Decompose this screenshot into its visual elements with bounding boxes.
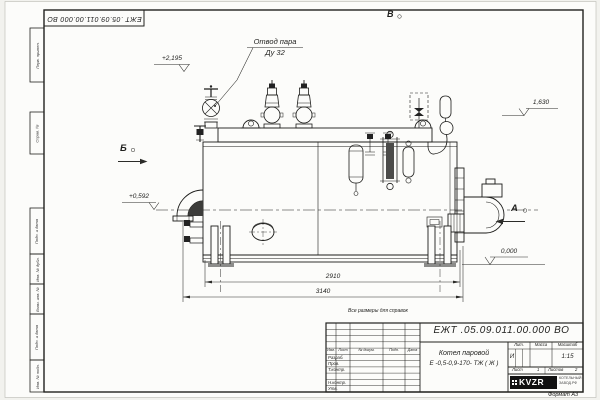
view-label-top: В xyxy=(387,10,394,19)
view-label-left: Б xyxy=(120,144,127,154)
titleblock-sheet-value: 1 xyxy=(537,368,539,372)
titleblock-col-izm: Изм. xyxy=(326,349,336,353)
titleblock-lit-header: Лит. xyxy=(508,343,530,347)
titleblock-mass-header: Масса xyxy=(530,343,552,347)
view-label-right: А xyxy=(511,204,518,214)
dimension-overall-length: 3140 xyxy=(300,289,346,296)
margin-col-perv-primen: Перв. примен. xyxy=(30,28,44,82)
titleblock-row-utv: Утв. xyxy=(328,387,338,391)
titleblock-row-nkontr: Н.контр. xyxy=(328,381,346,385)
titleblock-col-doc: № докум. xyxy=(350,349,383,353)
format-note: Формат А3 xyxy=(548,393,578,399)
titleblock-col-list: Лист xyxy=(336,349,350,353)
margin-col-inv-dubl: Инв. № дубл. xyxy=(30,254,44,284)
titleblock-sheets-label: Листов xyxy=(548,368,563,372)
stamp-doc-number: ЕЖТ .05.09.011.00.000 ВО xyxy=(44,10,144,26)
titleblock-col-date: Дата xyxy=(405,349,420,353)
elevation-value-axis: +0,592 xyxy=(121,194,157,201)
titleblock-col-sign: Подп. xyxy=(383,349,405,353)
titleblock-sheet-label: Лист xyxy=(512,368,523,372)
steam-outlet-label-line2: Ду 32 xyxy=(246,49,304,57)
dimension-shell-length: 2910 xyxy=(310,274,356,281)
titleblock-scale-header: Масштаб xyxy=(552,343,583,347)
titleblock-row-razrab: Разраб. xyxy=(328,356,344,360)
margin-col-sprav: Справ. № xyxy=(30,112,44,154)
titleblock-doc-number: ЕЖТ .05.09.011.00.000 ВО xyxy=(421,326,582,336)
titleblock-row-prov: Пров. xyxy=(328,362,339,366)
titleblock-row-tkontr: Т.контр. xyxy=(328,368,345,372)
titleblock-scale-value: 1:15 xyxy=(552,354,583,360)
margin-col-podp-data-2: Подп. и дата xyxy=(30,314,44,360)
titleblock-product-designation: Е -0,5-0,9-170- ТЖ ( Ж ) xyxy=(420,361,508,367)
kvzr-caption-line1: КОТЕЛЬНЫЙ xyxy=(559,377,582,381)
drawing-sheet: ЕЖТ .05.09.011.00.000 ВО Перв. примен. С… xyxy=(0,0,600,400)
elevation-value-ground: 0,000 xyxy=(489,249,529,256)
drawing-canvas xyxy=(0,0,600,400)
elevation-value-siphon: 1,630 xyxy=(524,100,558,107)
titleblock-product-name: Котел паровой xyxy=(420,350,508,357)
kvzr-logo-icon xyxy=(512,380,517,385)
margin-col-vzam-inv: Взам. инв. № xyxy=(30,284,44,314)
titleblock-lit-value: И xyxy=(508,354,516,360)
margin-col-inv-podl: Инв. № подл. xyxy=(30,360,44,392)
reference-note: Все размеры для справок xyxy=(348,309,408,314)
kvzr-caption-line2: ЗАВОД.РФ xyxy=(559,382,577,386)
elevation-value-top: +2,195 xyxy=(154,56,190,63)
paper-edge xyxy=(5,2,596,398)
kvzr-logo-text: KVZR xyxy=(519,377,544,387)
margin-col-podp-data-1: Подп. и дата xyxy=(30,208,44,254)
steam-outlet-label-line1: Отвод пара xyxy=(246,38,304,46)
kvzr-logo: KVZR xyxy=(510,376,557,390)
titleblock-sheets-value: 2 xyxy=(575,368,577,372)
